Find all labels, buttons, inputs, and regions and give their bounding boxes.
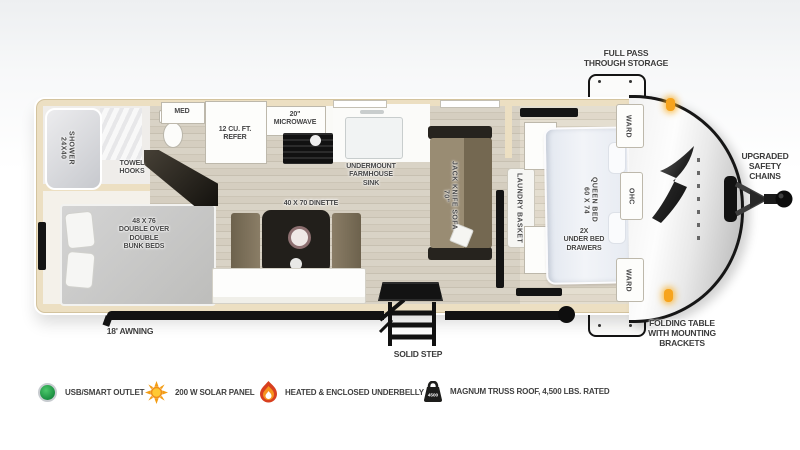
brand-logo-swoosh-icon [648,142,700,262]
bunks-label: 48 X 76 DOUBLE OVER DOUBLE BUNK BEDS [104,218,184,251]
solar-panel-icon [145,381,168,404]
window-top-1 [333,100,387,108]
table-box-screw-1 [598,324,601,327]
table-plate-icon [288,226,311,249]
under-bed-drawers-label: 2X UNDER BED DRAWERS [556,228,612,253]
legend-item-underbelly: HEATED & ENCLOSED UNDERBELLY [259,381,424,403]
awning-bar-left [107,311,384,320]
sofa-label: 70" JACK KNIFE SOFA [441,148,458,244]
sofa-arm-bottom [428,247,492,260]
med-label: MED [161,108,203,116]
bunk-pillow-2 [64,251,95,289]
legend-label: HEATED & ENCLOSED UNDERBELLY [285,388,424,397]
toilet-bowl-icon [163,122,183,148]
marker-light-bottom [664,289,673,302]
legend-label: 200 W SOLAR PANEL [175,388,255,397]
bunk-window [38,222,46,270]
window-top-2 [440,100,500,108]
awning-roller-cap [558,306,575,323]
table-box-screw-2 [629,324,632,327]
dinette-bench-left [231,213,260,271]
bedroom-ohc-bottom [516,288,562,296]
full-pass-storage-label: FULL PASS THROUGH STORAGE [566,48,686,68]
dinette-label: 40 X 70 DINETTE [266,200,356,208]
range-cooktop-icon [283,133,333,164]
laundry-label: LAUNDRY BASKET [514,172,522,244]
legend-row: USB/SMART OUTLET 200 W SOLAR PANEL HEATE… [38,383,778,405]
floorplan-canvas: 24X40 SHOWER TOWEL HOOKS MED 12 CU. FT. … [0,0,800,450]
sink-label: UNDERMOUNT FARMHOUSE SINK [335,163,407,188]
legend-item-truss-roof: 4500 MAGNUM TRUSS ROOF, 4,500 LBS. RATED [423,381,610,402]
awning-bar-right [445,311,563,320]
truss-roof-badge: 4500 [428,393,439,398]
usb-smart-outlet-icon [38,383,57,402]
refer-label: 12 CU. FT. REFER [205,126,265,143]
bedroom-ohc-top [520,108,578,117]
legend-label: USB/SMART OUTLET [65,388,144,397]
dinette-bench-right [332,213,361,271]
truss-roof-icon: 4500 [423,381,443,402]
legend-item-solar: 200 W SOLAR PANEL [145,381,255,404]
brand-wordmark-marks [697,158,700,244]
dinette-slide-panel [212,268,366,304]
safety-chains-label: UPGRADED SAFETY CHAINS [736,151,794,181]
farmhouse-sink-basin [345,117,403,159]
faucet-icon [360,110,384,114]
legend-label: MAGNUM TRUSS ROOF, 4,500 LBS. RATED [450,387,610,396]
towel-hooks-label: TOWEL HOOKS [110,160,154,177]
linen-shelves [100,108,142,160]
solid-step-icon [378,300,442,350]
awning-label: 18' AWNING [100,326,160,336]
shower-label: 24X40 SHOWER [58,118,75,178]
queen-bed-label: 60 X 74 QUEEN BED [581,162,598,238]
ward-bottom-label: WARD [623,264,631,296]
ohc-label: OHC [626,182,634,210]
storage-box-screw-2 [629,80,632,83]
heated-underbelly-icon [259,381,278,403]
bedroom-wall-stub [505,106,512,158]
bunk-pillow-1 [64,211,96,250]
marker-light-top [666,98,675,111]
range-burner-icon [310,135,321,146]
ward-top-label: WARD [623,110,631,142]
legend-item-usb-outlet: USB/SMART OUTLET [38,383,144,402]
storage-box-screw-1 [598,80,601,83]
microwave-label: 20" MICROWAVE [266,111,324,128]
tv-divider [496,190,504,288]
folding-table-label: FOLDING TABLE WITH MOUNTING BRACKETS [640,318,724,348]
solid-step-label: SOLID STEP [388,349,448,359]
entry-door-mat [378,282,443,301]
